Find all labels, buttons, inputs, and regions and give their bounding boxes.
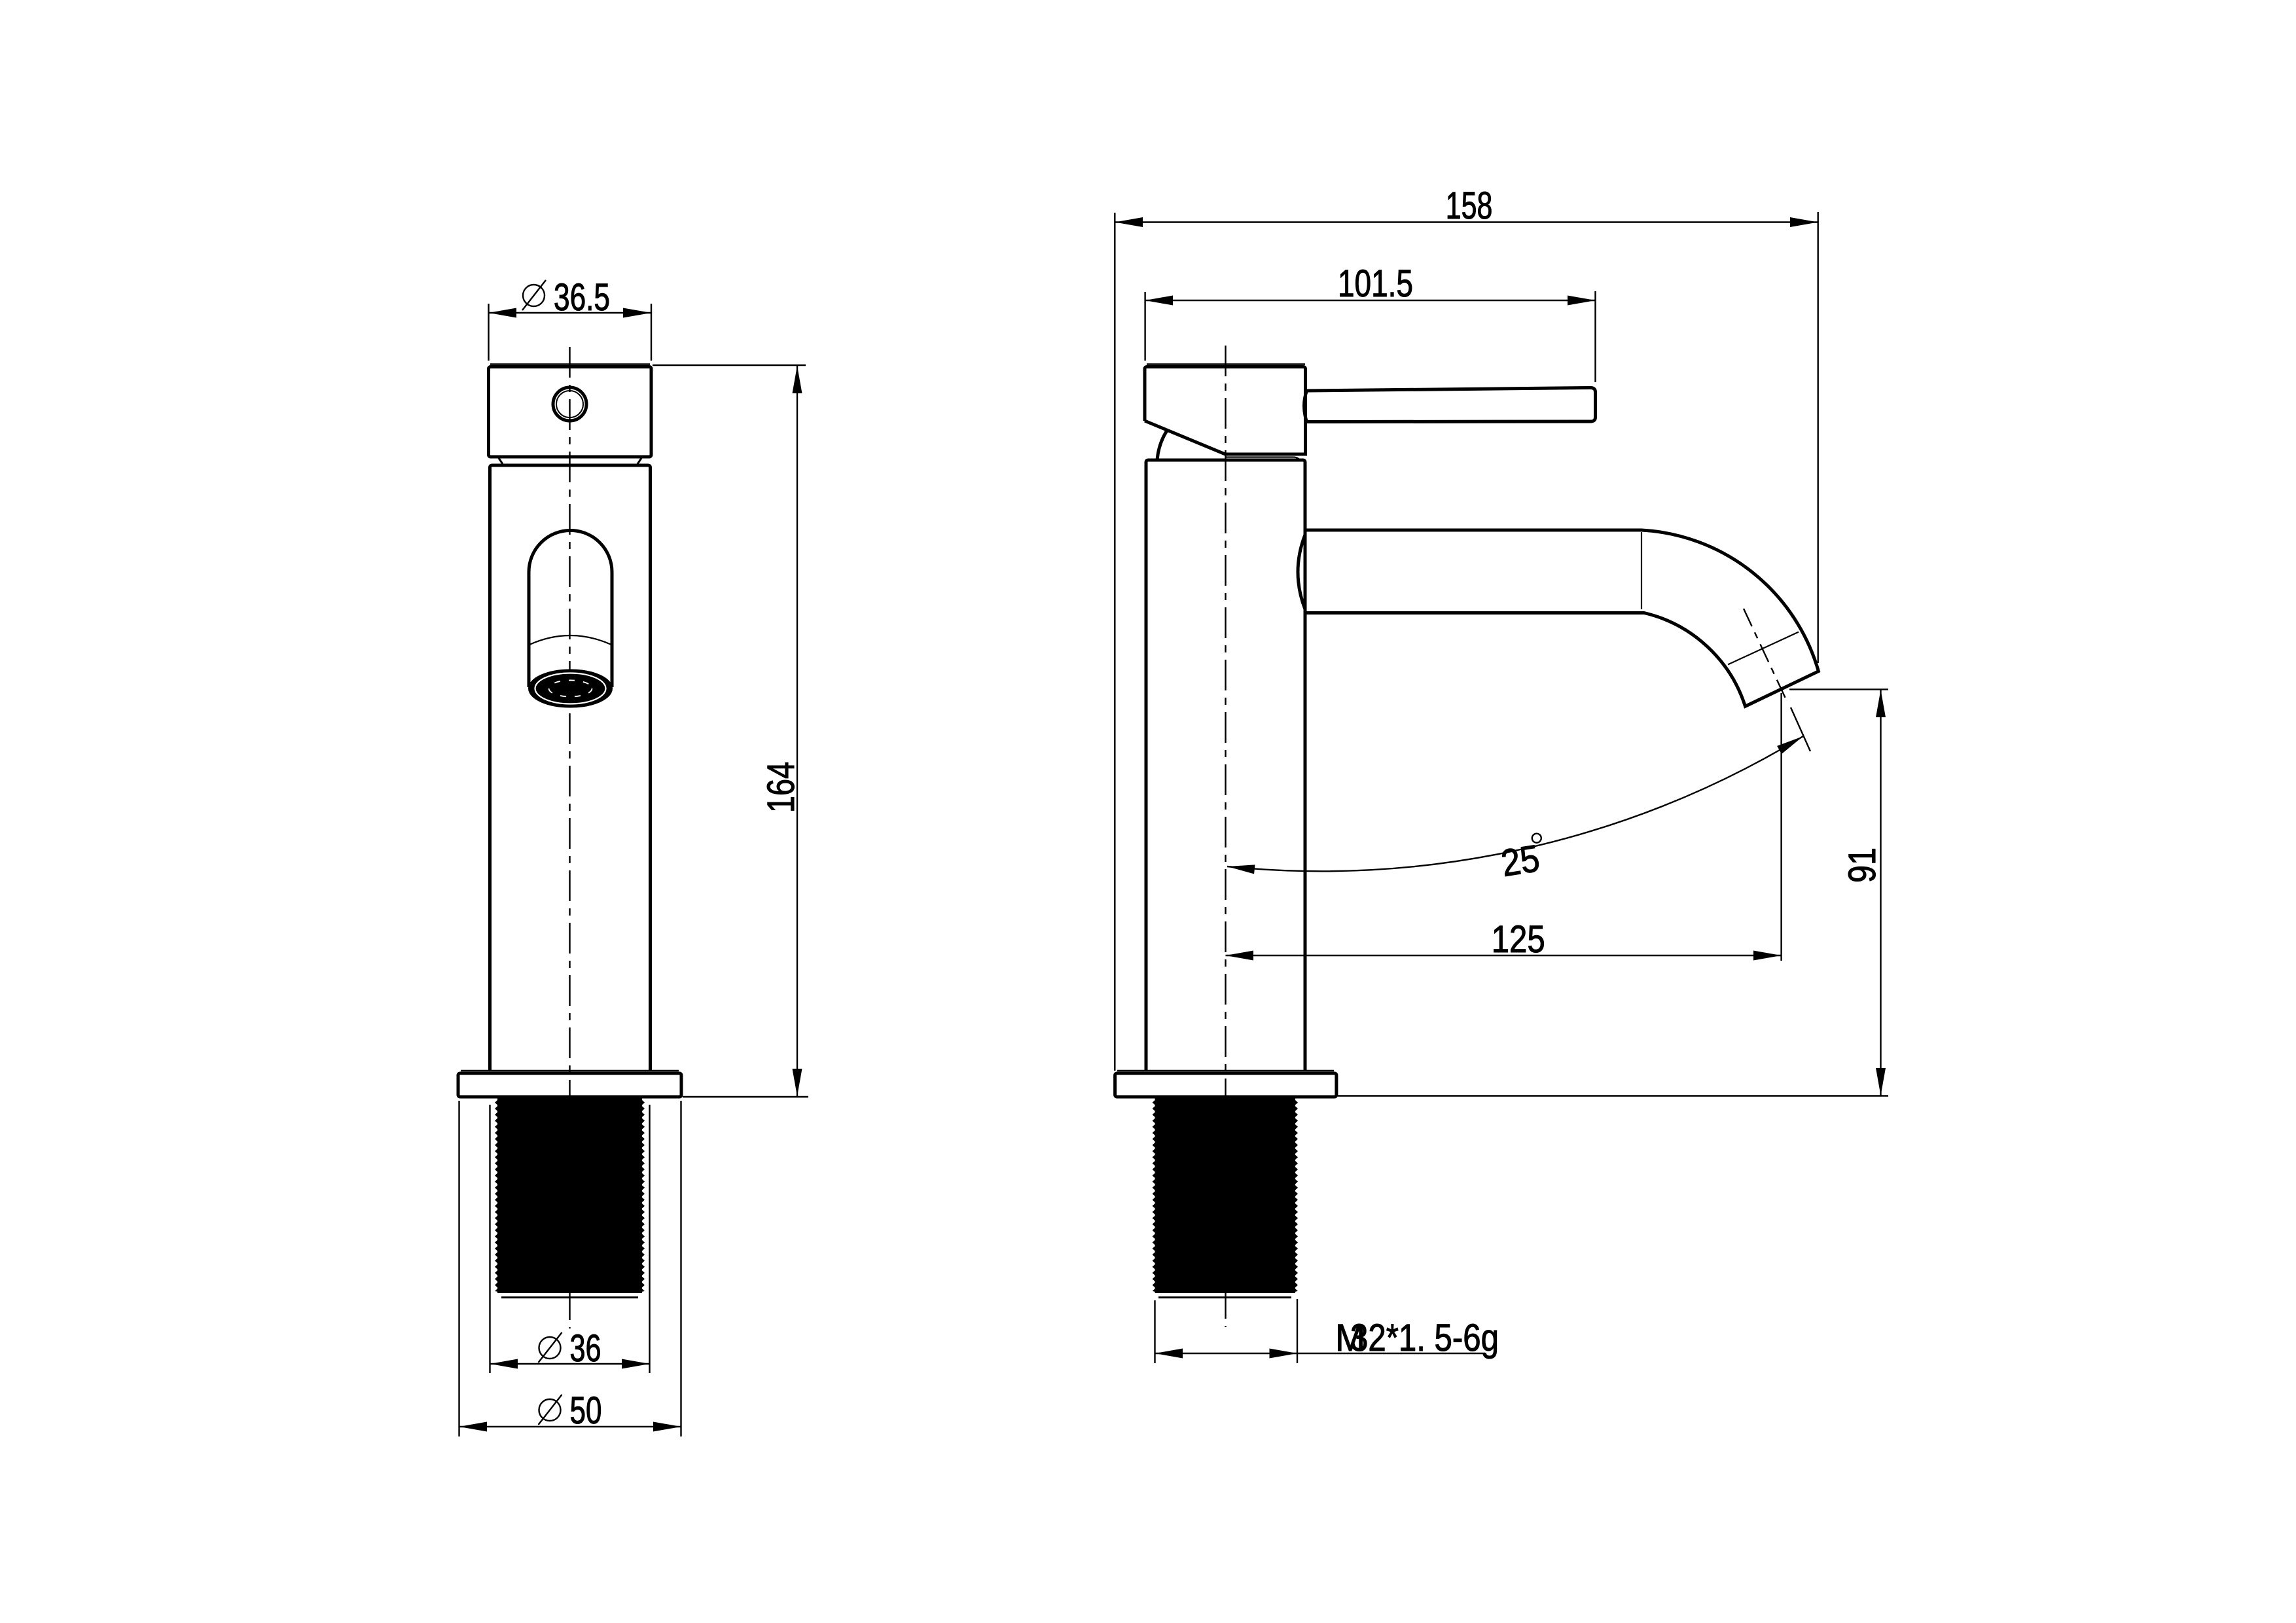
svg-text:32*1. 5-6g: 32*1. 5-6g (1350, 1317, 1499, 1359)
svg-text:50: 50 (570, 1389, 602, 1432)
svg-text:36: 36 (570, 1327, 601, 1370)
svg-text:158: 158 (1446, 185, 1493, 227)
svg-text:164: 164 (760, 762, 802, 813)
svg-text:125: 125 (1492, 918, 1545, 961)
svg-text:101.5: 101.5 (1338, 262, 1413, 305)
svg-text:25: 25 (1498, 837, 1542, 885)
svg-text:91: 91 (1841, 847, 1884, 883)
svg-text:36.5: 36.5 (554, 276, 610, 319)
